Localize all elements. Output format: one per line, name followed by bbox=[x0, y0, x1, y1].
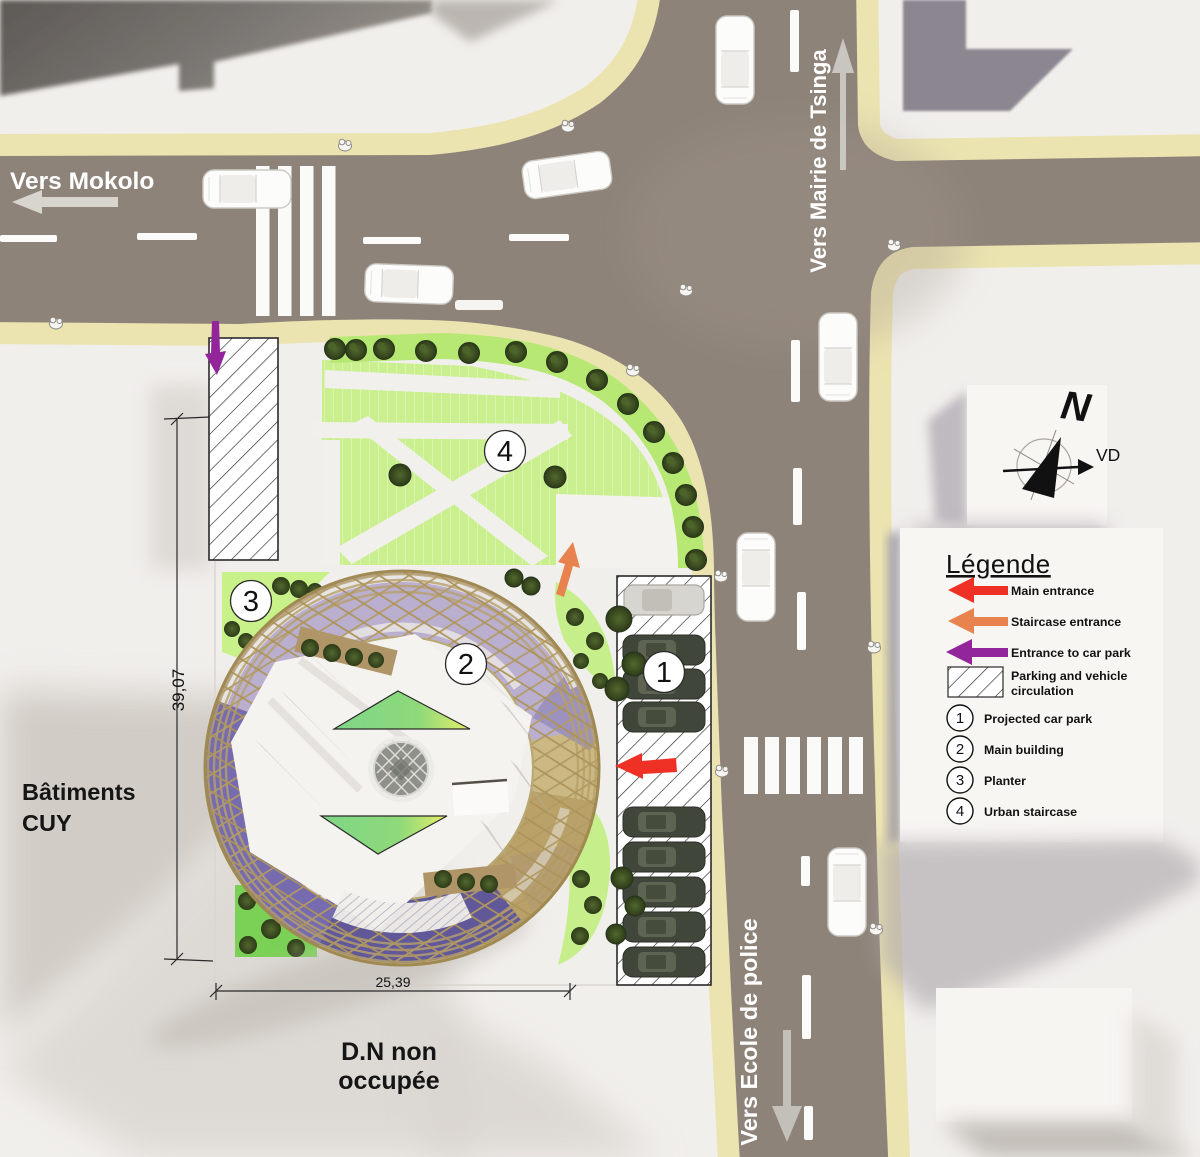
svg-text:Vers Mairie de Tsinga: Vers Mairie de Tsinga bbox=[806, 49, 831, 273]
svg-text:Staircase entrance: Staircase entrance bbox=[1011, 615, 1121, 629]
svg-text:Vers Ecole de police: Vers Ecole de police bbox=[736, 918, 762, 1145]
svg-text:1: 1 bbox=[956, 710, 964, 727]
svg-text:Vers Mokolo: Vers Mokolo bbox=[10, 168, 154, 195]
svg-text:2: 2 bbox=[956, 741, 964, 758]
svg-text:D.N non: D.N non bbox=[341, 1038, 437, 1066]
svg-text:4: 4 bbox=[956, 803, 964, 820]
svg-text:Urban staircase: Urban staircase bbox=[984, 805, 1077, 819]
svg-text:4: 4 bbox=[497, 436, 513, 468]
svg-text:39,07: 39,07 bbox=[169, 669, 188, 712]
svg-text:3: 3 bbox=[956, 772, 964, 789]
svg-text:Planter: Planter bbox=[984, 774, 1026, 788]
svg-text:occupée: occupée bbox=[338, 1067, 440, 1095]
svg-text:Parking and vehicle: Parking and vehicle bbox=[1011, 669, 1127, 683]
svg-text:CUY: CUY bbox=[22, 810, 72, 836]
svg-text:2: 2 bbox=[458, 649, 474, 681]
svg-text:25,39: 25,39 bbox=[375, 974, 410, 990]
svg-text:VD: VD bbox=[1096, 445, 1120, 465]
svg-text:circulation: circulation bbox=[1011, 684, 1074, 698]
svg-text:Entrance to car park: Entrance to car park bbox=[1011, 646, 1131, 660]
svg-text:Bâtiments: Bâtiments bbox=[22, 779, 136, 805]
svg-text:3: 3 bbox=[243, 586, 259, 618]
svg-text:Main building: Main building bbox=[984, 743, 1064, 757]
svg-text:Main entrance: Main entrance bbox=[1011, 584, 1094, 598]
svg-text:Projected car park: Projected car park bbox=[984, 712, 1092, 726]
svg-text:1: 1 bbox=[656, 657, 672, 689]
svg-text:Légende: Légende bbox=[946, 549, 1051, 579]
